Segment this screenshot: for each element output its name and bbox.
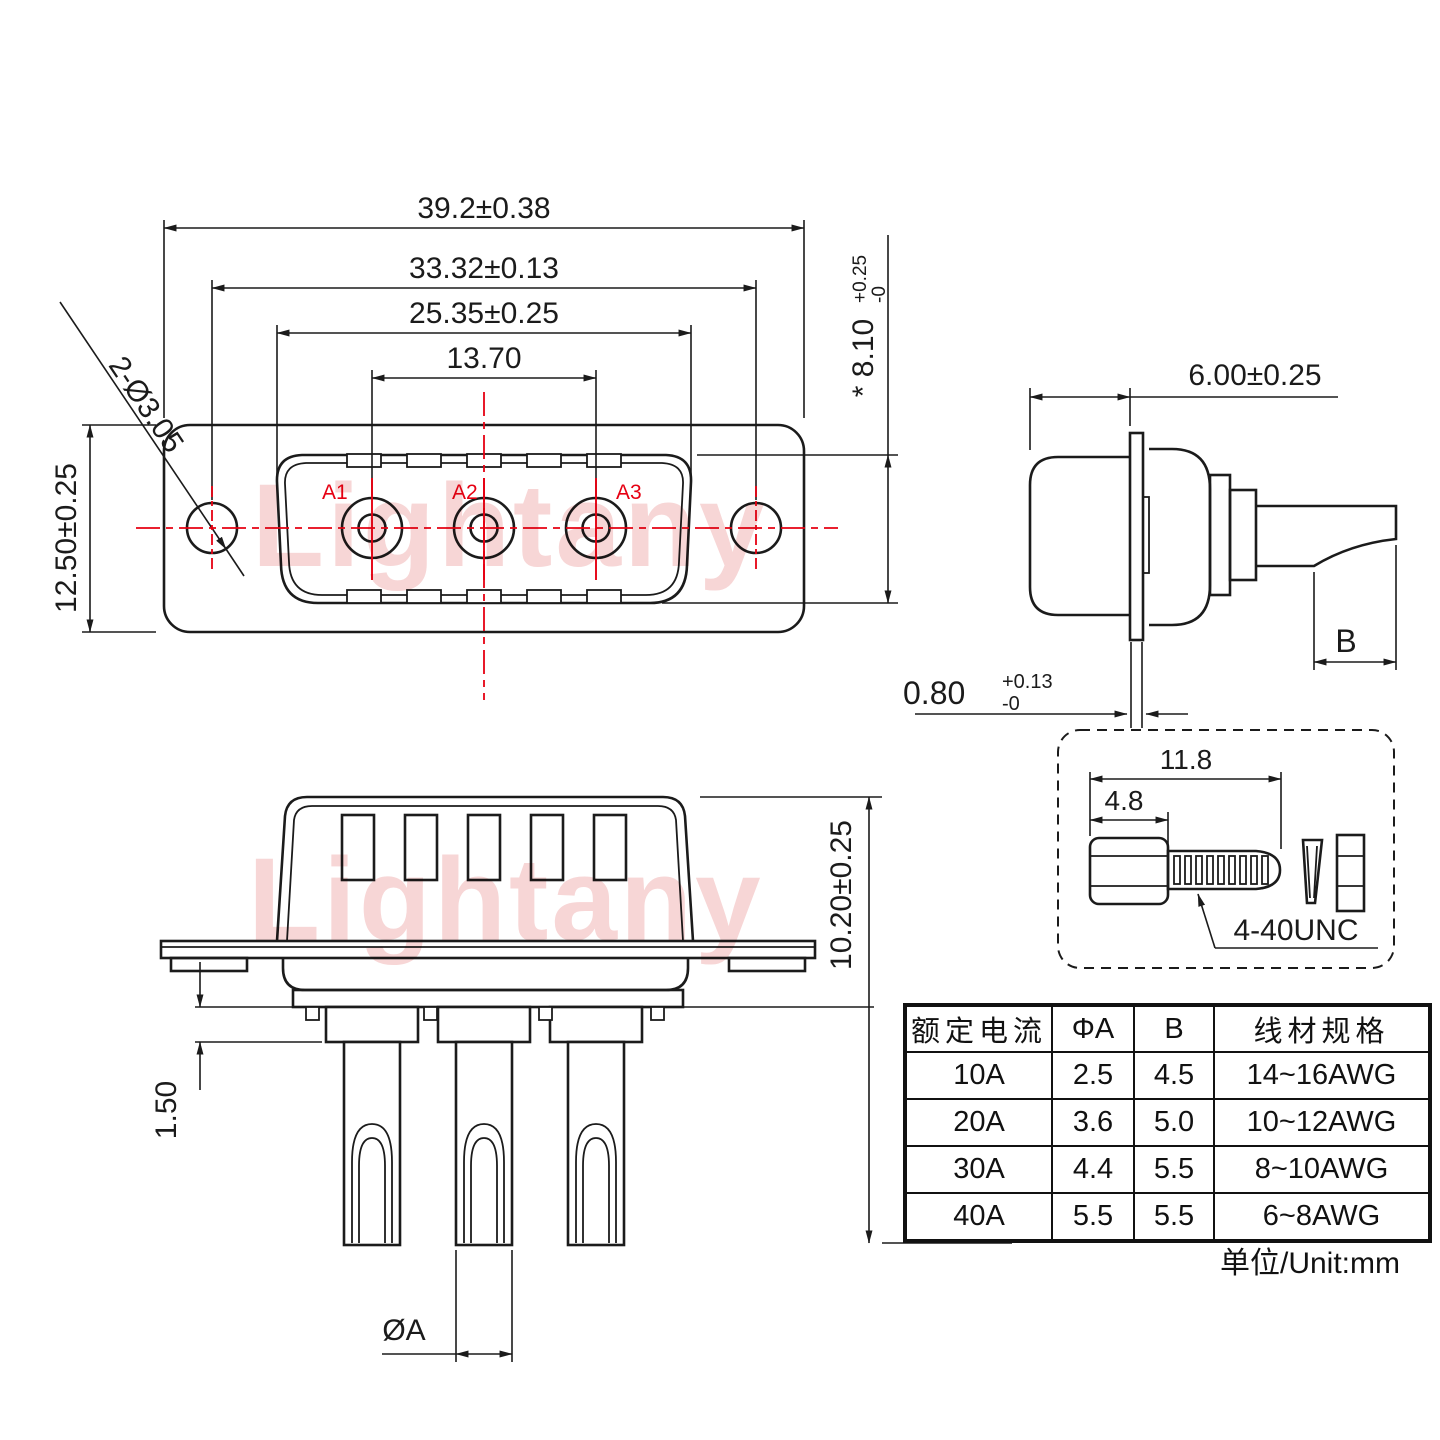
dim-shell-height-label: * 8.10 — [847, 319, 880, 397]
cell: 5.5 — [1134, 1193, 1214, 1241]
dim-shell-height: * 8.10 +0.25 -0 — [662, 235, 898, 603]
side-flange — [1130, 433, 1143, 640]
dim-solder-cup: B — [1314, 545, 1396, 670]
wedge-piece — [1303, 840, 1322, 903]
solder-cup-pins — [344, 1042, 624, 1245]
spec-row-40a: 40A 5.5 5.5 6~8AWG — [905, 1193, 1430, 1241]
cell: 30A — [905, 1146, 1052, 1193]
connector-technical-drawing: 39.2±0.38 33.32±0.13 25.35±0.25 13.70 — [0, 0, 1440, 1440]
side-step2 — [1230, 490, 1256, 580]
dim-shell-height-tol-minus: -0 — [869, 286, 890, 303]
cell: 10~12AWG — [1214, 1099, 1430, 1146]
flange-tab-left — [171, 958, 247, 971]
cell: 5.5 — [1052, 1193, 1134, 1241]
cell: 10A — [905, 1052, 1052, 1099]
side-rear-boot — [1149, 449, 1210, 625]
dim-flange-thickness: 0.80 +0.13 -0 — [903, 642, 1188, 728]
dim-screw-head: 4.8 — [1090, 785, 1168, 849]
cell: 5.5 — [1134, 1146, 1214, 1193]
spec-row-10a: 10A 2.5 4.5 14~16AWG — [905, 1052, 1430, 1099]
cell: 6~8AWG — [1214, 1193, 1430, 1241]
side-view: 6.00±0.25 B 0.80 +0.13 -0 — [903, 359, 1396, 728]
thread-spec-callout: 4-40UNC — [1198, 894, 1378, 948]
dim-contact-span-label: 13.70 — [446, 342, 521, 375]
centerlines — [136, 392, 838, 700]
screw-threads — [1174, 856, 1268, 884]
dim-body-height-label: 10.20±0.25 — [825, 820, 858, 970]
dim-body-depth: 6.00±0.25 — [1030, 359, 1338, 450]
dim-solder-cup-label: B — [1335, 623, 1356, 659]
dim-pin-diameter-label: ØA — [382, 1314, 425, 1347]
dim-pin-diameter: ØA — [382, 1250, 512, 1362]
dim-body-depth-label: 6.00±0.25 — [1188, 359, 1321, 392]
contact-label-a2: A2 — [452, 481, 478, 504]
cell: 8~10AWG — [1214, 1146, 1430, 1193]
dim-hole-spacing-label: 33.32±0.13 — [409, 252, 559, 285]
dim-flange-tol-plus: +0.13 — [1002, 671, 1053, 693]
side-wire — [1256, 506, 1396, 566]
insulator-body — [283, 958, 688, 990]
dim-flange-width-label: 39.2±0.38 — [417, 192, 550, 225]
insulator-base — [293, 990, 683, 1007]
dim-flange-thickness-label: 0.80 — [903, 675, 965, 711]
contact-shoulders — [306, 1007, 664, 1042]
hood-slots — [342, 815, 626, 880]
dim-screw-head-label: 4.8 — [1105, 785, 1144, 816]
screw-head — [1090, 838, 1168, 904]
unit-note: 单位/Unit:mm — [1140, 1238, 1400, 1282]
spec-row-30a: 30A 4.4 5.5 8~10AWG — [905, 1146, 1430, 1193]
side-body-outline — [1030, 457, 1130, 615]
contact-label-a1: A1 — [322, 481, 348, 504]
dim-flange-tol-minus: -0 — [1002, 693, 1020, 715]
cell: 4.4 — [1052, 1146, 1134, 1193]
spec-table: 额定电流 ΦA B 线材规格 10A 2.5 4.5 14~16AWG 20A … — [903, 1003, 1432, 1243]
cell: 5.0 — [1134, 1099, 1214, 1146]
dim-shell-width-label: 25.35±0.25 — [409, 297, 559, 330]
contact-label-a3: A3 — [616, 481, 642, 504]
screw-detail: 11.8 4.8 4-40UNC — [1058, 730, 1394, 968]
cell: 2.5 — [1052, 1052, 1134, 1099]
bottom-view: 1.50 10.20±0.25 ØA — [150, 797, 1012, 1362]
dim-flange-height-label: 12.50±0.25 — [50, 463, 83, 613]
cell: 3.6 — [1052, 1099, 1134, 1146]
clip-piece — [1337, 835, 1364, 911]
front-view: 39.2±0.38 33.32±0.13 25.35±0.25 13.70 — [50, 192, 898, 700]
spec-row-20a: 20A 3.6 5.0 10~12AWG — [905, 1099, 1430, 1146]
col-header-rated-current: 额定电流 — [905, 1005, 1052, 1052]
dim-contact-span: 13.70 — [372, 342, 596, 496]
col-header-wire-gauge: 线材规格 — [1214, 1005, 1430, 1052]
flange-tab-right — [729, 958, 805, 971]
callout-mounting-holes-label: 2-Ø3.05 — [102, 351, 190, 459]
dim-standoff-label: 1.50 — [150, 1081, 183, 1139]
spec-header-row: 额定电流 ΦA B 线材规格 — [905, 1005, 1430, 1052]
col-header-b: B — [1134, 1005, 1214, 1052]
dim-shell-height-tol-plus: +0.25 — [850, 255, 871, 303]
side-step1 — [1210, 475, 1230, 595]
thread-spec-label: 4-40UNC — [1233, 914, 1358, 947]
callout-mounting-holes: 2-Ø3.05 — [60, 302, 244, 576]
dim-screw-overall-label: 11.8 — [1160, 744, 1212, 775]
cell: 4.5 — [1134, 1052, 1214, 1099]
bottom-flange — [161, 941, 815, 958]
cell: 20A — [905, 1099, 1052, 1146]
cell: 14~16AWG — [1214, 1052, 1430, 1099]
col-header-phi-a: ΦA — [1052, 1005, 1134, 1052]
cell: 40A — [905, 1193, 1052, 1241]
